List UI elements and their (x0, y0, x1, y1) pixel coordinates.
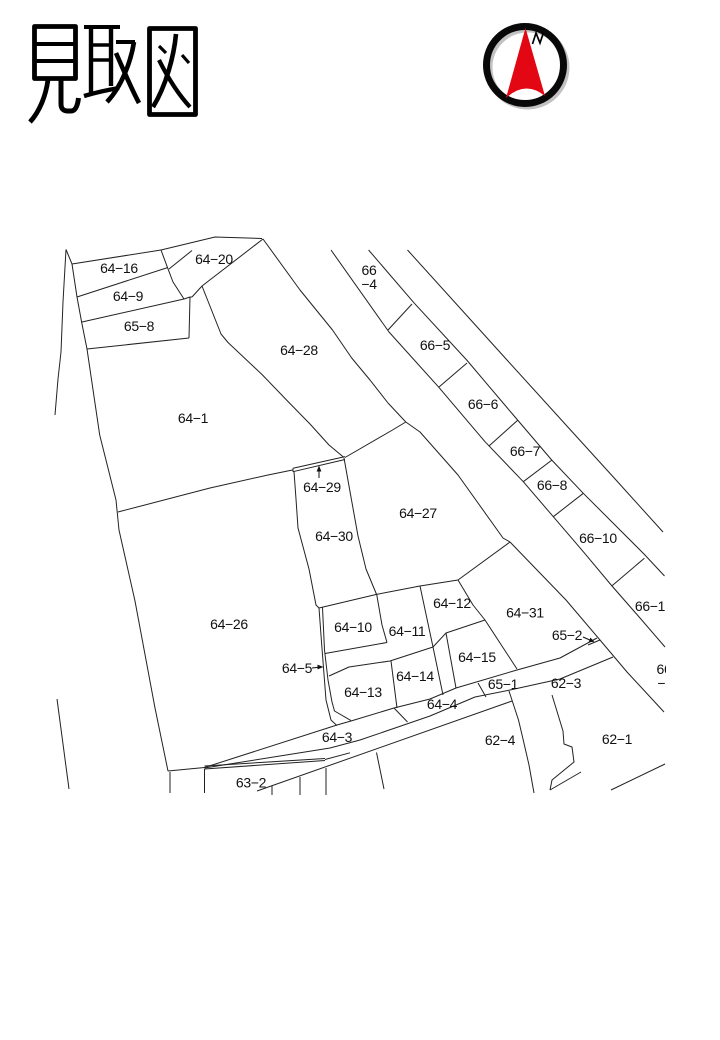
svg-text:66−7: 66−7 (510, 443, 541, 459)
svg-text:66−5: 66−5 (420, 337, 451, 353)
svg-text:64−27: 64−27 (399, 505, 437, 521)
svg-text:64−5: 64−5 (282, 660, 313, 676)
svg-text:66−10: 66−10 (579, 530, 617, 546)
svg-text:64−10: 64−10 (334, 619, 372, 635)
svg-text:65−8: 65−8 (124, 318, 155, 334)
svg-text:64−1: 64−1 (178, 410, 209, 426)
svg-text:65−1: 65−1 (488, 676, 519, 692)
svg-text:62−1: 62−1 (602, 731, 633, 747)
svg-text:64−3: 64−3 (322, 729, 353, 745)
svg-text:64−11: 64−11 (389, 623, 426, 639)
svg-text:64−15: 64−15 (458, 649, 496, 665)
svg-text:64−4: 64−4 (427, 696, 458, 712)
svg-text:−4: −4 (361, 276, 377, 292)
svg-text:64−13: 64−13 (344, 684, 382, 700)
svg-text:62−4: 62−4 (485, 732, 516, 748)
svg-text:64−31: 64−31 (506, 605, 544, 621)
svg-text:64−26: 64−26 (210, 616, 248, 632)
svg-text:64−28: 64−28 (280, 342, 318, 358)
svg-text:64−16: 64−16 (100, 260, 138, 276)
svg-text:65−2: 65−2 (552, 627, 583, 643)
svg-text:64−9: 64−9 (113, 288, 144, 304)
svg-text:64−14: 64−14 (396, 668, 434, 684)
svg-text:66−8: 66−8 (537, 477, 568, 493)
svg-text:63−2: 63−2 (236, 775, 267, 791)
svg-text:64−30: 64−30 (315, 528, 353, 544)
svg-text:64−12: 64−12 (433, 595, 471, 611)
svg-text:66−6: 66−6 (468, 396, 499, 412)
svg-text:64−20: 64−20 (195, 251, 233, 267)
svg-text:62−3: 62−3 (551, 675, 582, 691)
svg-text:66−1: 66−1 (635, 598, 666, 614)
svg-text:64−29: 64−29 (303, 479, 341, 495)
